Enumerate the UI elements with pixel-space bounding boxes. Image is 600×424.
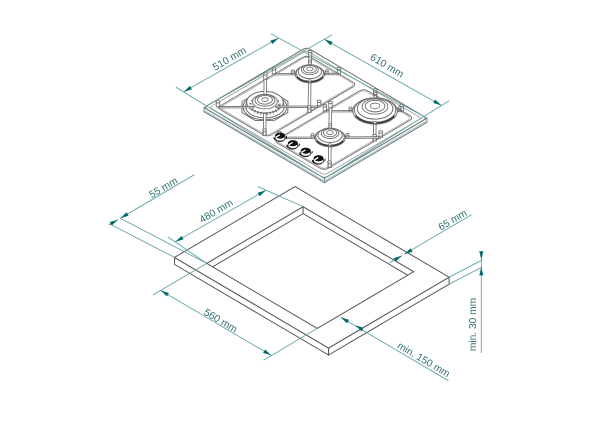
svg-text:min. 30 mm: min. 30 mm [468, 298, 479, 351]
